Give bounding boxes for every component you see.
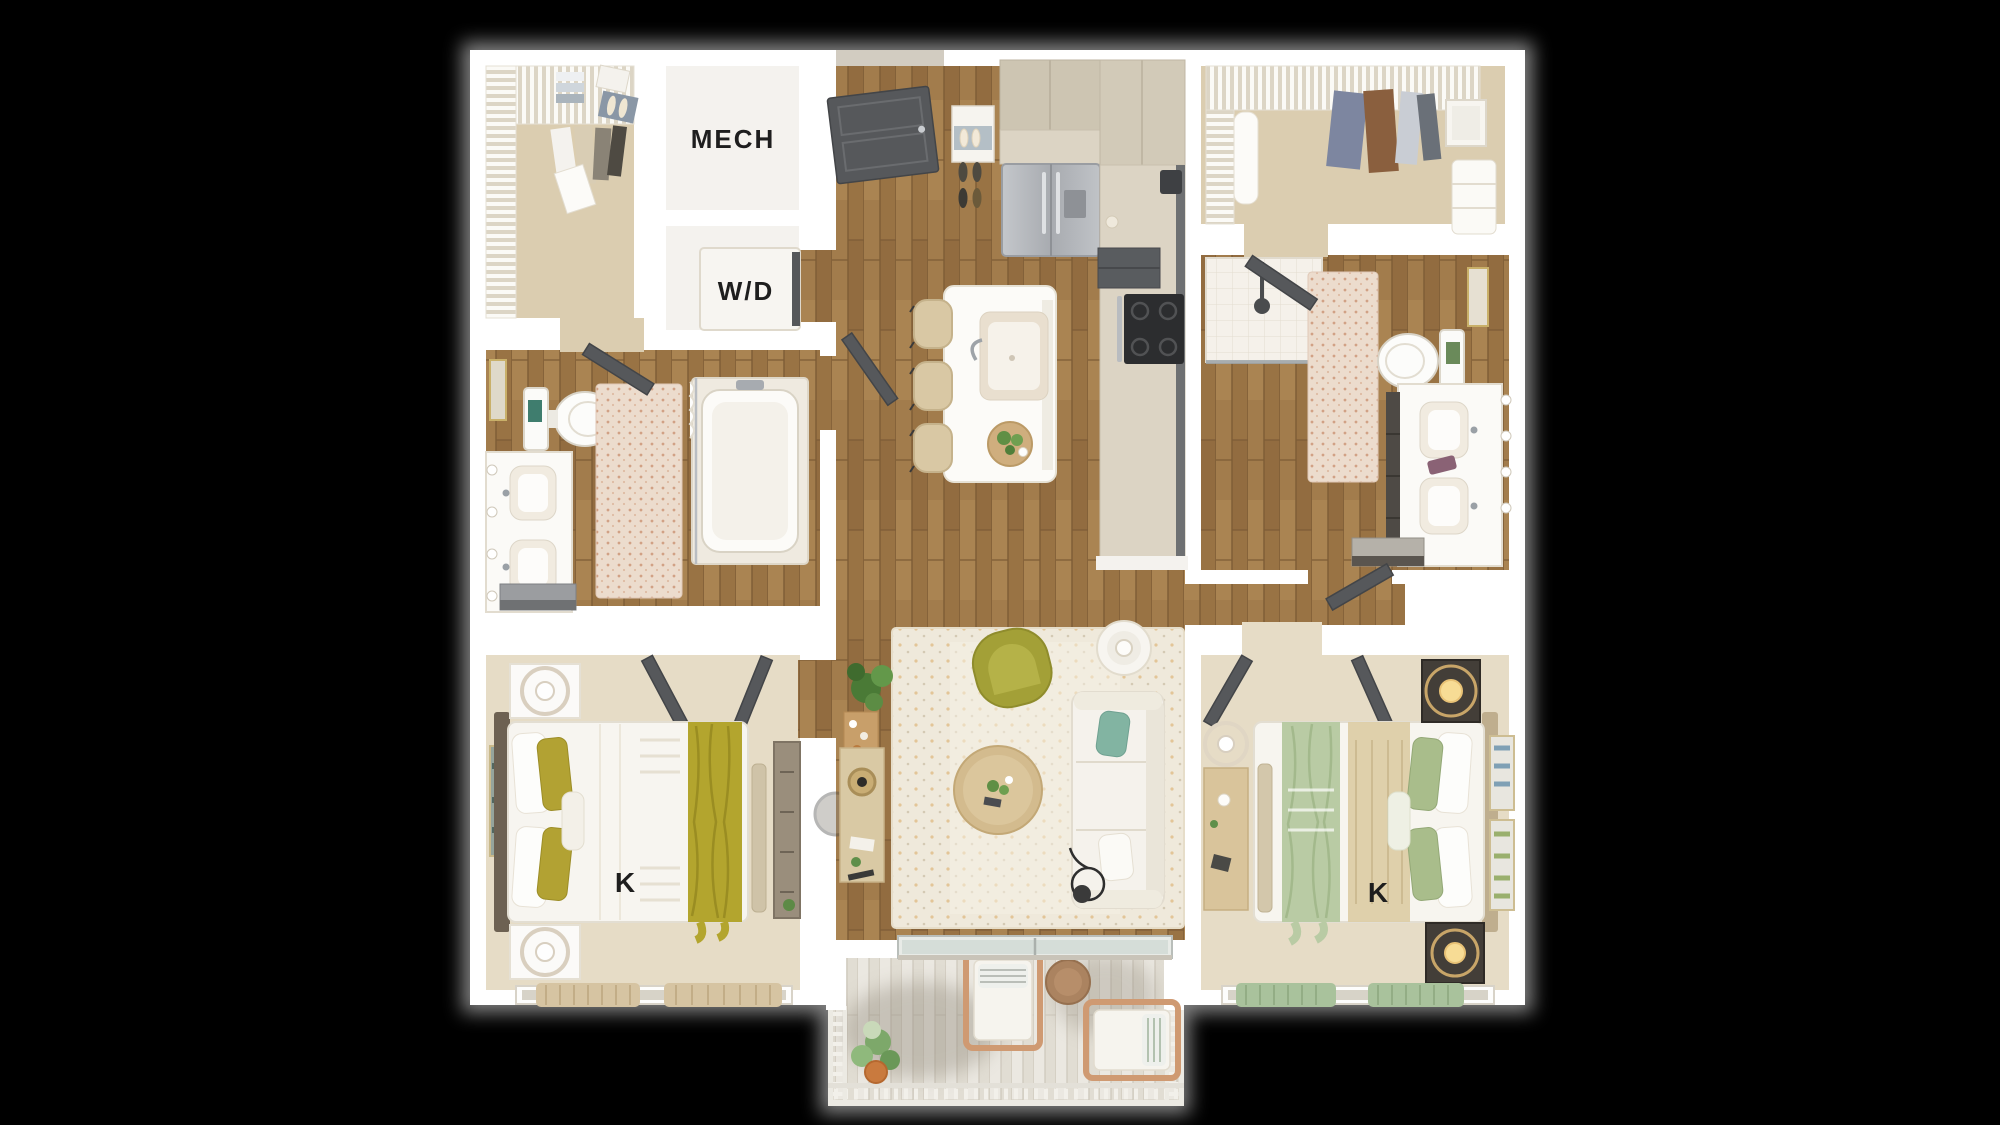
washer-dryer-label: W/D	[718, 276, 775, 306]
king-bed: K	[494, 712, 748, 940]
counter-right-run	[1096, 165, 1188, 570]
side-table-lamp	[1097, 621, 1151, 675]
island-stools	[910, 300, 952, 472]
bolster-cushion	[1234, 112, 1258, 204]
lumbar-pillow	[1388, 792, 1410, 850]
balcony-table	[1046, 960, 1090, 1004]
teal-pillow	[1095, 710, 1131, 758]
king-bed: K	[1254, 712, 1498, 942]
right-corridor-floor	[1185, 584, 1405, 625]
balcony-lounge-chair-2	[1086, 1002, 1178, 1078]
balcony	[826, 952, 1184, 1106]
window-bottom	[1222, 983, 1494, 1007]
folded-clothes	[556, 72, 584, 103]
balcony-lounge-chair-1	[966, 952, 1040, 1048]
hanging-clothes	[1326, 89, 1441, 173]
lumbar-pillow	[562, 792, 584, 850]
nightstand-bottom	[1426, 923, 1484, 983]
storage-cabinet	[1352, 538, 1424, 566]
bath-runner-rug	[1308, 272, 1378, 482]
kitchen-island	[910, 286, 1056, 482]
washer-dryer-side	[792, 252, 800, 326]
sliding-glass-door	[898, 936, 1172, 960]
olive-throw	[688, 722, 742, 940]
foot-bench	[752, 764, 766, 912]
laundry-opening	[799, 250, 836, 322]
sage-throw	[1282, 722, 1340, 942]
bathtub	[690, 378, 808, 564]
closet-right-doorway	[1244, 222, 1328, 257]
bath-runner-rug	[596, 384, 682, 598]
wall-art	[1468, 268, 1488, 326]
window-bottom	[516, 983, 792, 1007]
sconce	[1501, 395, 1511, 405]
nightstand-top	[1422, 660, 1480, 722]
wall-art-frames	[1490, 736, 1514, 910]
island-tray-plant	[988, 422, 1032, 466]
bedding-stack	[1452, 160, 1496, 234]
coffee-maker	[1160, 170, 1182, 194]
mech-room: MECH	[691, 124, 776, 154]
shower-head	[1254, 298, 1270, 314]
storage-cabinet	[500, 584, 576, 610]
console-table	[840, 748, 884, 882]
front-door	[827, 86, 939, 184]
bedroom-right-doorway	[1242, 622, 1322, 658]
floor-plan-canvas: MECH W/D	[0, 0, 2000, 1125]
sconce	[487, 465, 497, 475]
refrigerator	[1002, 164, 1100, 256]
sofa	[1072, 692, 1164, 908]
king-bed-label-left: K	[615, 867, 635, 898]
coffee-table	[954, 746, 1042, 834]
tub-faucet	[736, 380, 764, 390]
closet-left-doorway	[560, 318, 644, 352]
bathroom-left-doorway	[818, 356, 838, 430]
nightstand-bottom	[510, 925, 580, 979]
balcony-wall-stub-left	[826, 958, 846, 1010]
laundry-closet: W/D	[700, 248, 800, 330]
mech-label: MECH	[691, 124, 776, 154]
cooktop	[1117, 294, 1184, 364]
oven-handle	[1117, 296, 1122, 362]
king-bed-label-right: K	[1368, 877, 1388, 908]
front-door-sill	[836, 50, 944, 66]
draped-blanket-sage	[1368, 983, 1464, 1007]
nightstand-top	[510, 664, 580, 718]
wall-art	[490, 360, 506, 420]
white-pillow	[1098, 832, 1135, 881]
closet-shelving-left	[486, 66, 516, 318]
bedroom-left-doorway	[798, 660, 838, 738]
counter-top-run	[1000, 130, 1100, 164]
dresser	[774, 742, 800, 918]
toilet	[1378, 330, 1464, 392]
jar	[1106, 216, 1118, 228]
closet-shelving-left	[1206, 110, 1234, 224]
foot-bench	[1258, 764, 1272, 912]
draped-blanket-sage	[1236, 983, 1336, 1007]
